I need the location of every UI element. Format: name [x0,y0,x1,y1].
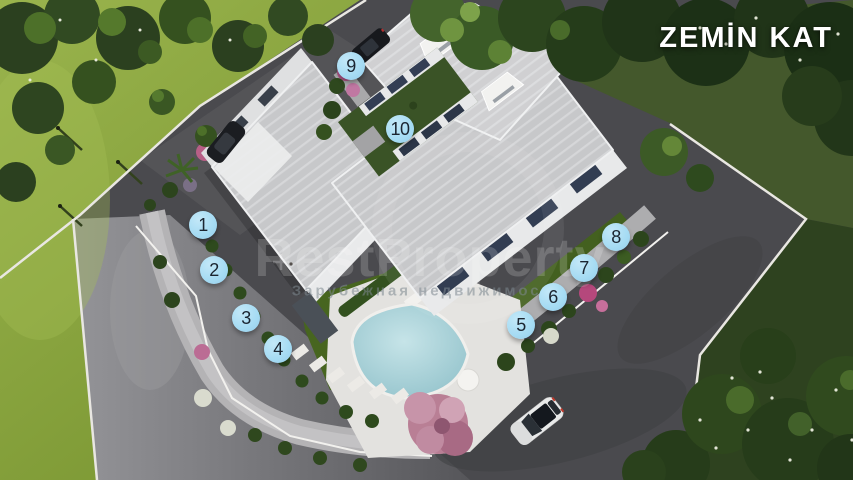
unit-marker-3[interactable]: 3 [232,304,260,332]
bird [289,262,292,265]
magenta-bush [579,284,597,302]
pink-bush [194,344,210,360]
unit-marker-2[interactable]: 2 [200,256,228,284]
site-aerial-render [0,0,853,480]
white-flower-bush [220,420,236,436]
unit-marker-1[interactable]: 1 [189,211,217,239]
unit-marker-4[interactable]: 4 [264,335,292,363]
unit-marker-9[interactable]: 9 [337,52,365,80]
unit-marker-8[interactable]: 8 [602,223,630,251]
white-flower-bush [543,328,559,344]
white-flower-bush [194,389,212,407]
unit-marker-7[interactable]: 7 [570,254,598,282]
floor-title: ZEMİN KAT [659,22,833,55]
floor-plan-render: RestProperty Зарубежная недвижимость ZEM… [0,0,853,480]
unit-marker-6[interactable]: 6 [539,283,567,311]
unit-marker-10[interactable]: 10 [386,115,414,143]
magenta-bush [596,300,608,312]
unit-marker-5[interactable]: 5 [507,311,535,339]
